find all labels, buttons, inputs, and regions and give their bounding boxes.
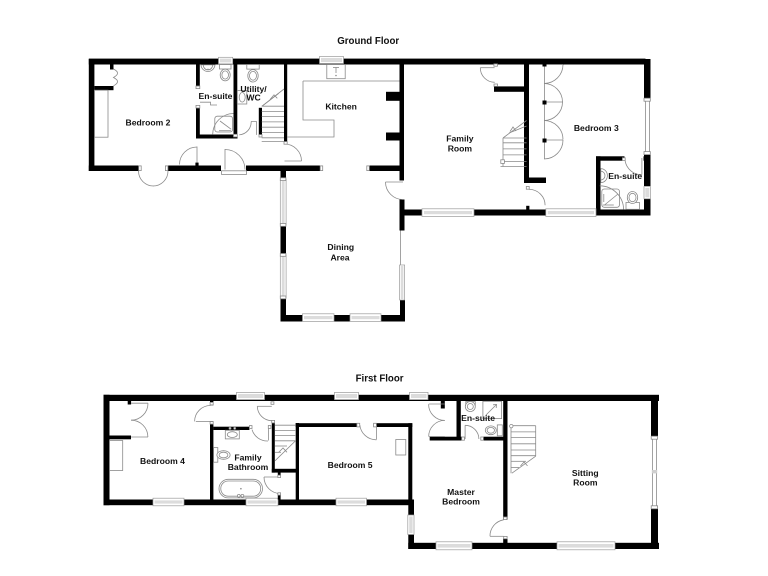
svg-text:First Floor: First Floor	[356, 373, 404, 384]
svg-text:En-suite: En-suite	[461, 413, 495, 423]
svg-text:Bathroom: Bathroom	[228, 462, 269, 472]
svg-text:Bedroom 3: Bedroom 3	[574, 123, 619, 133]
svg-text:Bedroom: Bedroom	[442, 496, 480, 506]
svg-text:Family: Family	[234, 452, 261, 462]
svg-text:Room: Room	[573, 478, 598, 488]
svg-text:Sitting: Sitting	[572, 468, 599, 478]
svg-text:En-suite: En-suite	[608, 171, 642, 181]
svg-text:Dining: Dining	[327, 242, 354, 252]
svg-text:Kitchen: Kitchen	[325, 102, 357, 112]
svg-text:WC: WC	[246, 93, 260, 103]
svg-text:Family: Family	[446, 133, 473, 143]
svg-text:Room: Room	[448, 144, 473, 154]
svg-text:Bedroom 2: Bedroom 2	[126, 117, 171, 127]
svg-text:Bedroom 4: Bedroom 4	[140, 456, 185, 466]
svg-text:Master: Master	[447, 487, 475, 497]
svg-text:Bedroom 5: Bedroom 5	[328, 460, 373, 470]
svg-text:Ground Floor: Ground Floor	[337, 36, 399, 47]
svg-text:En-suite: En-suite	[199, 91, 233, 101]
svg-text:Area: Area	[330, 253, 349, 263]
